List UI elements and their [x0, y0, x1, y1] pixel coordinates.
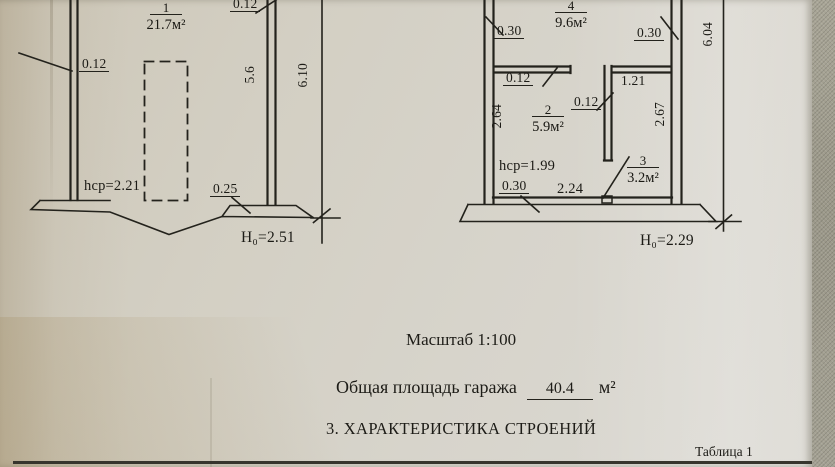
dim-footing-width: 0.25 — [210, 182, 240, 197]
room-1-number: 1 — [150, 2, 183, 15]
room-4-label: 4 9.6м² — [544, 0, 598, 31]
dim-room3-depth: 2.67 — [653, 102, 667, 126]
dim-room2-depth: 2.64 — [490, 104, 504, 128]
table-top-rule — [13, 461, 812, 464]
room-2-label: 2 5.9м² — [523, 101, 573, 135]
dim-height-note-right: Н₀=2.29 — [640, 234, 694, 248]
room-3-label: 3 3.2м² — [619, 152, 667, 186]
scale-note: Масштаб 1:100 — [406, 330, 516, 350]
dim-wall-top-right: 0.30 — [634, 26, 664, 41]
total-area-label: Общая площадь гаража — [336, 377, 517, 397]
dim-outer-length-right: 6.04 — [701, 22, 715, 46]
dim-wall-left: 0.12 — [79, 57, 109, 72]
dim-partition-mid: 0.12 — [571, 95, 601, 110]
total-area-unit: м² — [599, 377, 616, 397]
dim-bottom-width: 2.24 — [557, 182, 583, 196]
room-1-label: 1 21.7м² — [137, 0, 195, 33]
total-area-line: Общая площадь гаража40.4м² — [336, 377, 616, 400]
room-1-area: 21.7м² — [137, 18, 195, 33]
dim-partition-left: 0.12 — [503, 71, 533, 86]
room-3-number: 3 — [627, 155, 660, 168]
dim-height-note-left: Н₀=2.51 — [241, 231, 295, 245]
dim-avg-height-right: hср=1.99 — [499, 159, 555, 173]
room-4-number: 4 — [555, 0, 588, 13]
dim-wall-right-top: 0.12 — [230, 0, 260, 12]
table-caption: Таблица 1 — [693, 444, 755, 462]
dim-avg-height: hср=2.21 — [84, 179, 140, 193]
room-4-area: 9.6м² — [544, 16, 598, 31]
dim-wall-top-left: 0.30 — [494, 24, 524, 39]
room-3-area: 3.2м² — [619, 171, 667, 186]
dim-inner-length: 5.6 — [243, 66, 257, 83]
room-2-area: 5.9м² — [523, 120, 573, 135]
total-area-value: 40.4 — [527, 380, 593, 400]
scanned-plan-photo: 1 21.7м² 0.12 0.12 5.6 6.10 hср=2.21 0.2… — [0, 0, 835, 467]
dim-niche-width: 1.21 — [621, 74, 645, 88]
dim-outer-length: 6.10 — [296, 63, 310, 87]
dim-wall-bottom-left: 0.30 — [499, 179, 529, 194]
room-2-number: 2 — [532, 104, 565, 117]
section-heading: 3. ХАРАКТЕРИСТИКА СТРОЕНИЙ — [326, 419, 596, 439]
